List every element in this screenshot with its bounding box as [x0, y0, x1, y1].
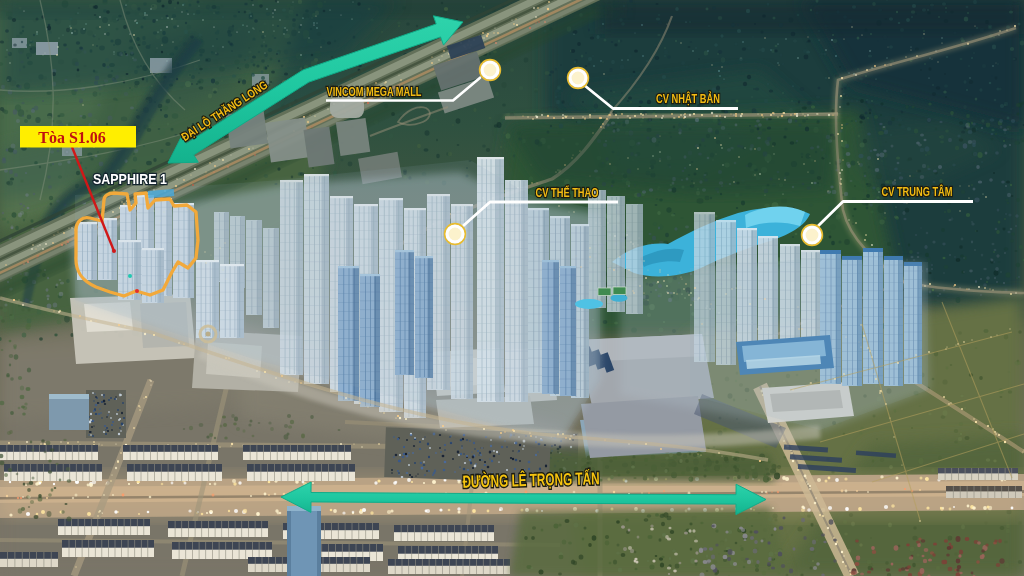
svg-text:ĐƯỜNG LÊ TRỌNG TẤN: ĐƯỜNG LÊ TRỌNG TẤN — [462, 467, 600, 492]
svg-text:CV THỂ THAO: CV THỂ THAO — [536, 185, 599, 200]
svg-text:SAPPHIRE 1: SAPPHIRE 1 — [93, 170, 167, 187]
svg-text:Tòa S1.06: Tòa S1.06 — [38, 129, 106, 146]
svg-text:CV TRUNG TÂM: CV TRUNG TÂM — [882, 184, 953, 199]
svg-text:CV NHẬT BẢN: CV NHẬT BẢN — [656, 91, 720, 106]
svg-text:VINCOM MEGA MALL: VINCOM MEGA MALL — [327, 85, 422, 99]
